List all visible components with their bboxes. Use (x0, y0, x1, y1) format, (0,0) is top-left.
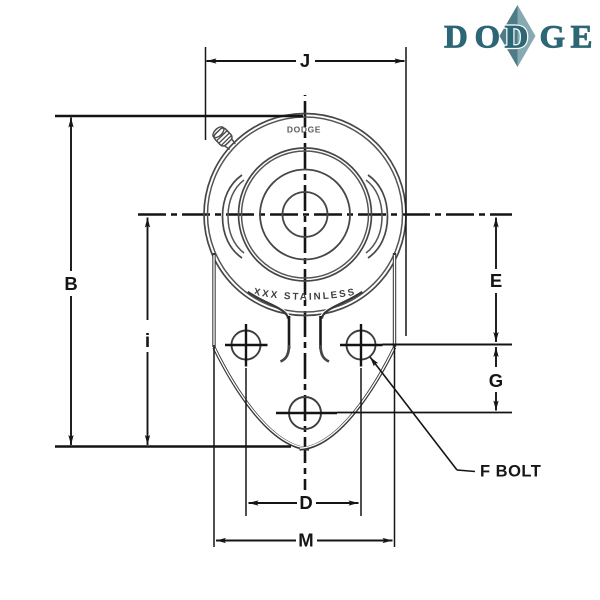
svg-text:M: M (298, 530, 313, 551)
svg-text:D: D (444, 20, 468, 56)
svg-text:E: E (490, 270, 502, 291)
svg-text:F BOLT: F BOLT (480, 463, 541, 481)
svg-text:G: G (489, 370, 503, 391)
svg-text:O: O (475, 20, 501, 56)
svg-text:B: B (64, 273, 77, 294)
svg-text:G: G (540, 20, 566, 56)
svg-text:E: E (571, 20, 593, 56)
svg-text:D: D (299, 492, 312, 513)
svg-text:J: J (300, 50, 310, 71)
svg-text:i: i (145, 331, 150, 352)
svg-text:D: D (505, 20, 529, 56)
svg-text:DODGE: DODGE (287, 125, 321, 135)
